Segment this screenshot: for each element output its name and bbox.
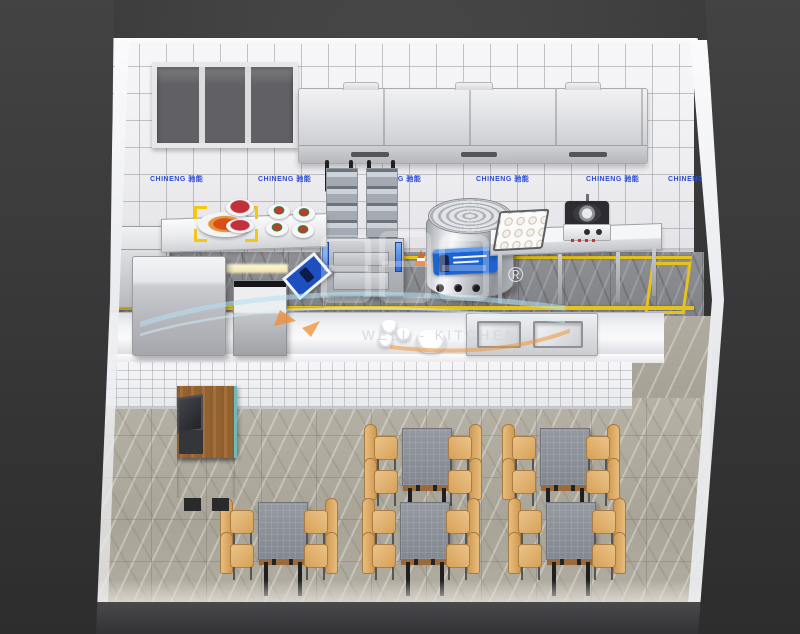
- chair-seat: [372, 544, 396, 568]
- counter-shelf: [179, 430, 203, 454]
- hood-tab: [455, 82, 493, 90]
- dining-chair: [362, 532, 396, 580]
- dining-chair: [220, 532, 254, 580]
- table-leg: [616, 252, 620, 302]
- kettle-knob: [472, 284, 480, 292]
- chair-seat: [446, 510, 470, 534]
- counter-foot: [184, 498, 201, 511]
- chair-seat: [304, 544, 328, 568]
- table-leg: [652, 248, 656, 296]
- chair-seat: [230, 544, 254, 568]
- food-bowl: [292, 223, 314, 238]
- hood-vent-slot: [569, 152, 607, 157]
- cooker-knob: [584, 229, 590, 235]
- exhaust-hood: [298, 88, 648, 164]
- stacked-cup: [378, 334, 393, 347]
- poster-text-line: [453, 255, 487, 259]
- counter-foot: [212, 498, 229, 511]
- window-mullion: [199, 67, 205, 143]
- chair-seat: [230, 510, 254, 534]
- foreground-band: [0, 602, 800, 634]
- round-container: [416, 330, 446, 353]
- hood-tab: [565, 82, 601, 90]
- table-leg: [498, 252, 502, 304]
- pos-monitor: [177, 394, 203, 434]
- chair-seat: [448, 470, 472, 494]
- chair-seat: [586, 470, 610, 494]
- induction-cooker: [562, 194, 612, 244]
- chair-seat: [372, 510, 396, 534]
- dining-table: [546, 502, 596, 560]
- kitchen-render: CHINENG 驰能 CHINENG 驰能 CHINENG 驰能 CHINENG…: [0, 0, 800, 634]
- chair-seat: [592, 510, 616, 534]
- under-counter-light: [226, 264, 288, 273]
- dining-table: [258, 502, 308, 560]
- counter-wood-front: [177, 458, 235, 498]
- wall-brand-label: CHINENG 驰能: [258, 174, 311, 184]
- cashier-counter: [175, 386, 239, 512]
- dining-chair: [508, 532, 542, 580]
- dining-table: [540, 428, 590, 486]
- food-bowl: [268, 204, 290, 219]
- chair-seat: [448, 436, 472, 460]
- table-leg: [558, 254, 562, 304]
- chair-seat: [374, 470, 398, 494]
- hood-tab: [343, 82, 379, 90]
- chair-seat: [512, 470, 536, 494]
- window: [152, 62, 298, 148]
- chair-seat: [592, 544, 616, 568]
- stacked-cup: [396, 328, 411, 341]
- food-bowl: [293, 206, 315, 221]
- chair-legs: [448, 567, 467, 580]
- dining-chair: [304, 532, 338, 580]
- poster-person-figure: [439, 255, 450, 273]
- control-panel: [395, 242, 402, 272]
- chair-seat: [512, 436, 536, 460]
- stainless-chest: [132, 256, 226, 356]
- cooker-knob: [596, 229, 602, 235]
- kettle-knob: [436, 284, 444, 292]
- stainless-cabinet-small: [233, 280, 287, 356]
- chair-legs: [233, 567, 252, 580]
- sign-figure: [299, 267, 315, 284]
- cooker-drawer: [333, 252, 389, 266]
- basket-tower: [326, 168, 358, 244]
- basket-tower: [366, 168, 398, 244]
- wok-pan: [573, 204, 601, 223]
- stacked-cup: [381, 320, 397, 334]
- cooker-drawer: [333, 272, 389, 290]
- chair-seat: [518, 544, 542, 568]
- sink-basin: [477, 321, 521, 348]
- hood-vent-slot: [461, 152, 497, 157]
- dining-chair: [446, 532, 480, 580]
- chair-legs: [594, 567, 613, 580]
- kettle-knob: [454, 284, 462, 292]
- chair-seat: [374, 436, 398, 460]
- window-mullion: [245, 67, 251, 143]
- dining-chair: [592, 532, 626, 580]
- sink-basin: [533, 321, 583, 348]
- chair-legs: [375, 567, 394, 580]
- chair-seat: [586, 436, 610, 460]
- wall-brand-label: CHINENG 驰能: [150, 174, 203, 184]
- noodle-cooker: [320, 156, 406, 298]
- chair-seat: [304, 510, 328, 534]
- window-glare: [157, 67, 293, 85]
- food-bowl: [266, 221, 288, 236]
- chair-seat: [446, 544, 470, 568]
- soup-kettle-brand-plate: [432, 246, 497, 275]
- dining-table: [400, 502, 450, 560]
- double-sink: [466, 313, 598, 356]
- chair-legs: [521, 567, 540, 580]
- dining-table: [402, 428, 452, 486]
- wall-brand-label: CHINENG 驰能: [586, 174, 639, 184]
- indicator-lights: [571, 239, 599, 242]
- chair-seat: [518, 510, 542, 534]
- chair-legs: [306, 567, 325, 580]
- safety-cone: [414, 250, 428, 266]
- bun-tray: [492, 209, 549, 252]
- meat-plate: [226, 199, 254, 216]
- poster-text-line: [453, 260, 479, 263]
- meat-plate: [226, 219, 254, 233]
- floor-fade: [96, 580, 710, 604]
- wall-brand-label: CHINENG 驰能: [476, 174, 529, 184]
